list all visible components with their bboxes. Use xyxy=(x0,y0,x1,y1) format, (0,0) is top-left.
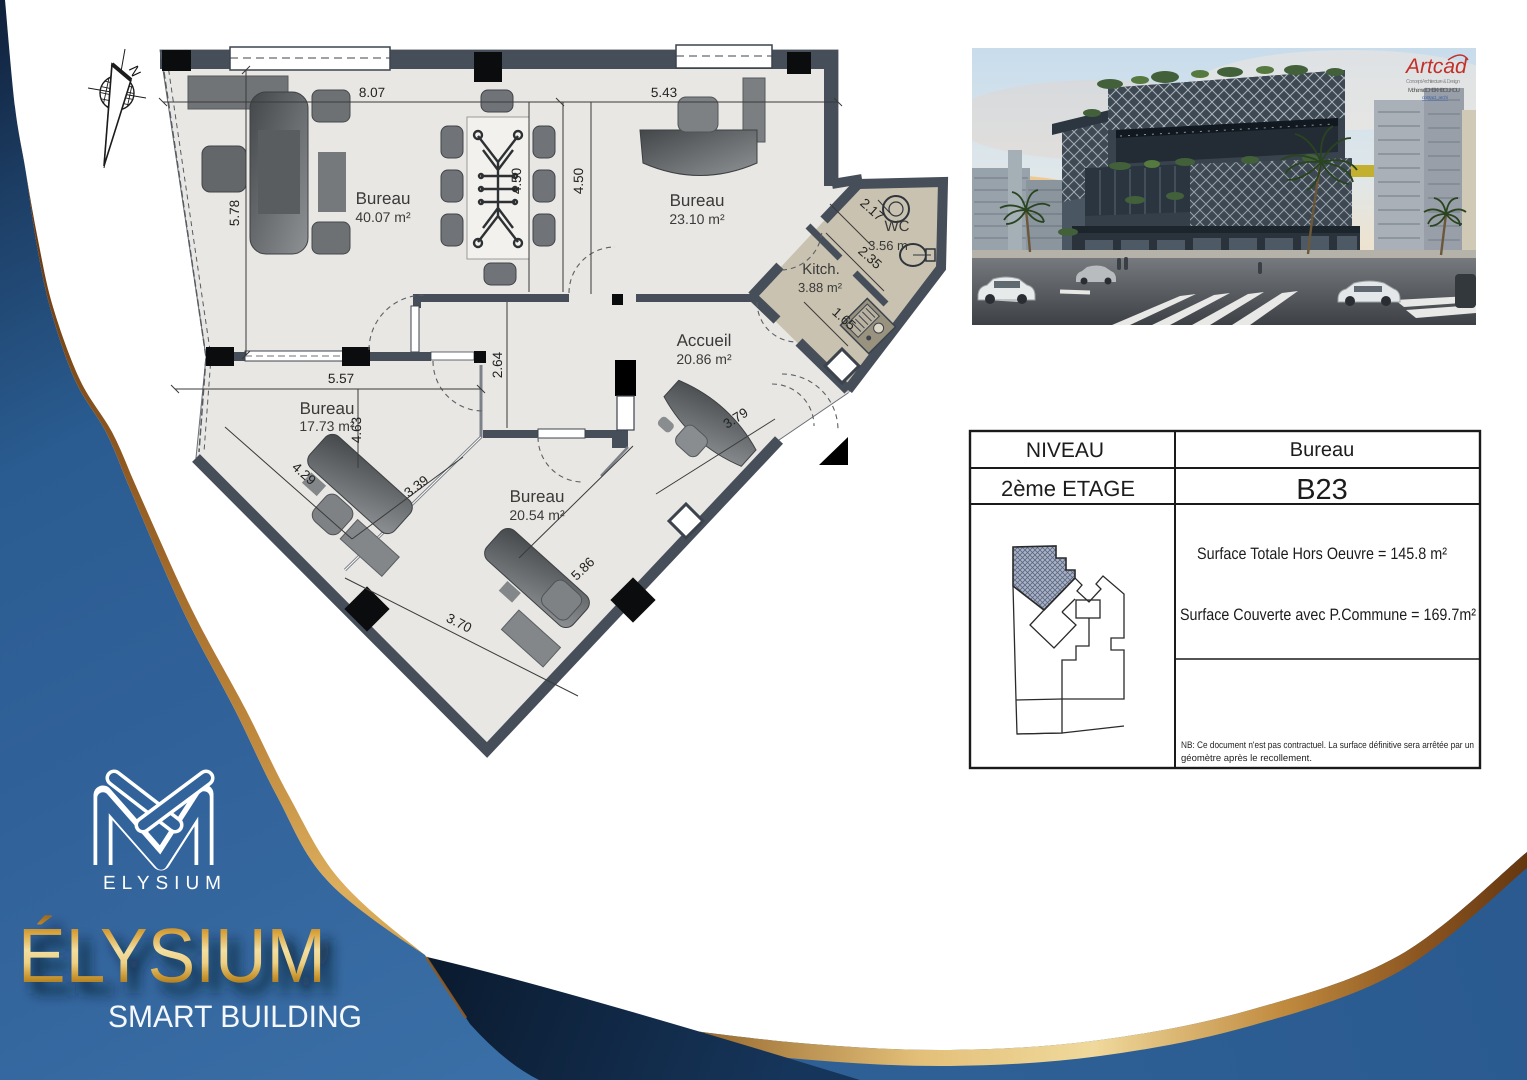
svg-text:contact_archi: contact_archi xyxy=(1422,95,1448,101)
svg-text:Bureau: Bureau xyxy=(510,487,565,506)
svg-text:NB: Ce document n'est pas cont: NB: Ce document n'est pas contractuel. L… xyxy=(1181,740,1474,751)
svg-text:23.10 m²: 23.10 m² xyxy=(669,211,725,227)
svg-text:4.50: 4.50 xyxy=(571,168,586,194)
svg-text:Kitch.: Kitch. xyxy=(802,261,840,278)
svg-text:Bureau: Bureau xyxy=(356,189,411,208)
svg-text:2ème ETAGE: 2ème ETAGE xyxy=(1001,476,1135,501)
svg-text:géomètre après le recollement.: géomètre après le recollement. xyxy=(1181,753,1312,764)
svg-text:Artcad: Artcad xyxy=(1404,55,1468,78)
svg-text:NIVEAU: NIVEAU xyxy=(1026,439,1104,462)
svg-text:2.64: 2.64 xyxy=(490,351,505,378)
svg-text:20.86 m²: 20.86 m² xyxy=(676,351,732,367)
svg-text:ÉLYSIUM: ÉLYSIUM xyxy=(18,913,326,999)
svg-text:Concept Architecture & Design: Concept Architecture & Design xyxy=(1406,79,1460,85)
svg-text:17.73 m²: 17.73 m² xyxy=(299,418,355,434)
svg-text:8.07: 8.07 xyxy=(359,85,385,100)
svg-text:4.50: 4.50 xyxy=(509,168,524,194)
svg-text:5.43: 5.43 xyxy=(651,85,677,100)
svg-text:WC: WC xyxy=(885,218,910,235)
svg-text:Surface Totale Hors Oeuvre = 1: Surface Totale Hors Oeuvre = 145.8 m² xyxy=(1197,545,1447,563)
svg-text:Accueil: Accueil xyxy=(677,331,732,350)
svg-text:40.07 m²: 40.07 m² xyxy=(355,209,411,225)
svg-text:20.54 m²: 20.54 m² xyxy=(509,507,565,523)
svg-text:ELYSIUM: ELYSIUM xyxy=(103,873,227,894)
svg-text:Bureau: Bureau xyxy=(300,399,355,418)
svg-text:B23: B23 xyxy=(1296,474,1348,506)
svg-text:3.88 m²: 3.88 m² xyxy=(798,280,843,295)
svg-text:5.57: 5.57 xyxy=(328,371,354,386)
svg-text:Mohamed CHEIKH BOUHOU: Mohamed CHEIKH BOUHOU xyxy=(1408,87,1460,94)
svg-text:Bureau: Bureau xyxy=(670,191,725,210)
svg-text:Bureau: Bureau xyxy=(1290,439,1355,461)
svg-text:3.56 m: 3.56 m xyxy=(868,238,908,253)
svg-text:Surface Couverte avec P.Commun: Surface Couverte avec P.Commune = 169.7m… xyxy=(1180,606,1476,624)
svg-text:5.78: 5.78 xyxy=(227,200,242,226)
svg-text:SMART BUILDING: SMART BUILDING xyxy=(108,999,362,1034)
